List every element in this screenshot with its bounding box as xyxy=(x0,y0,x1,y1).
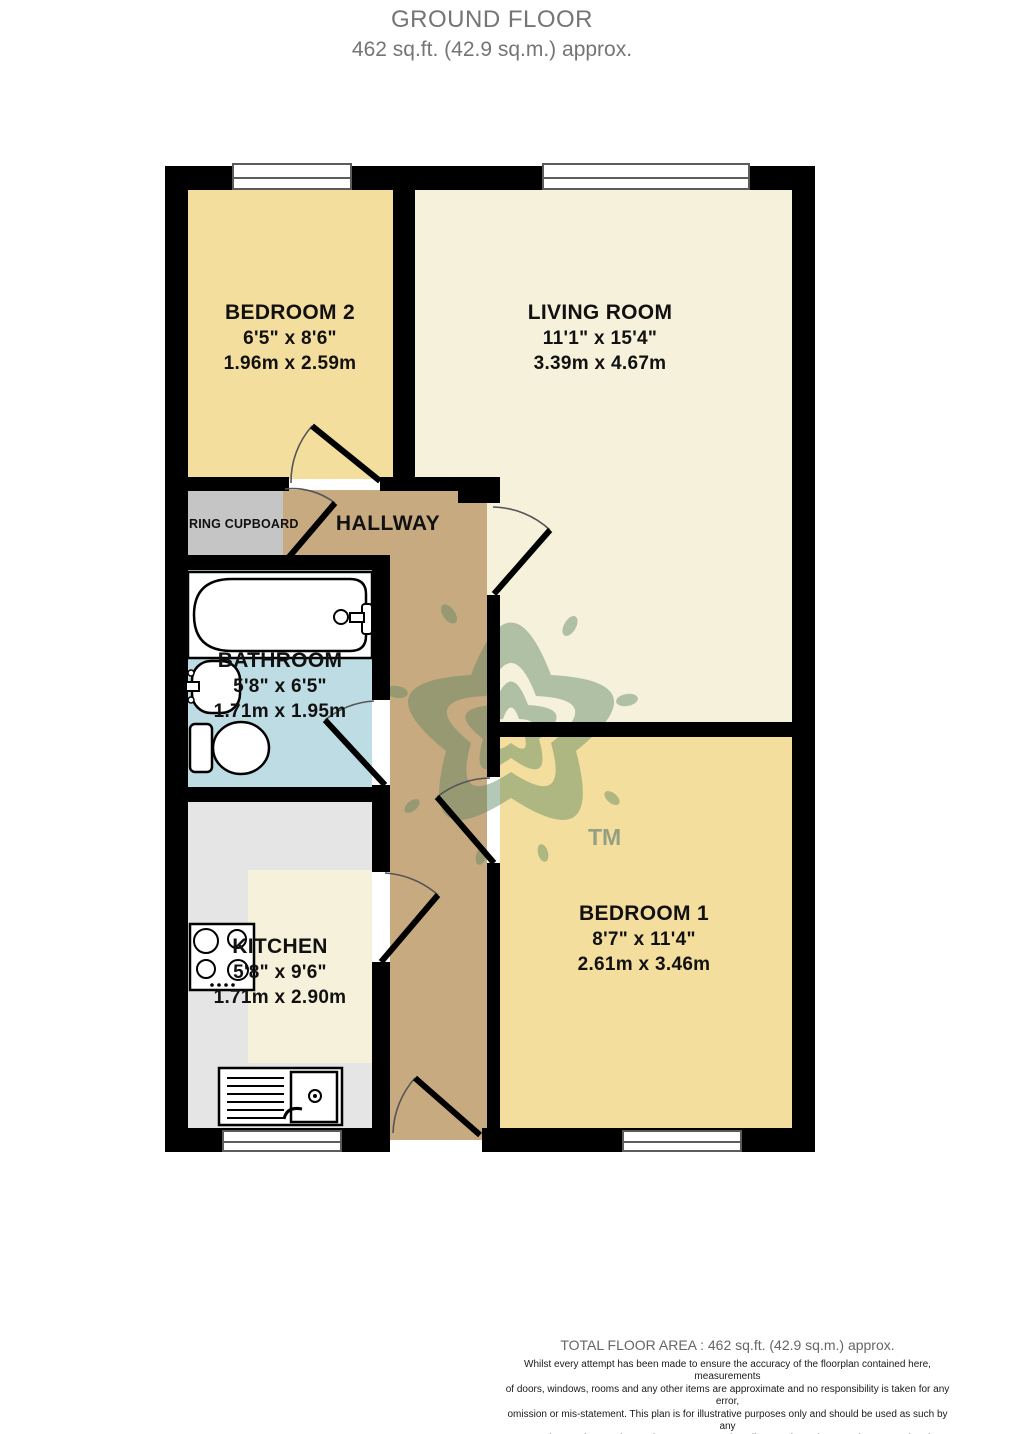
wall-hall-bedroom1-lower xyxy=(487,863,500,1128)
floor-title: GROUND FLOOR xyxy=(0,6,984,34)
room-dims-metric: 3.39m x 4.67m xyxy=(475,351,725,376)
wall-hall-living xyxy=(487,595,500,727)
room-name: LIVING ROOM xyxy=(475,300,725,326)
wall-right xyxy=(792,166,815,1152)
room-name: RING CUPBOARD xyxy=(189,517,299,531)
airing-cupboard-label: RING CUPBOARD xyxy=(189,517,289,531)
room-dims-metric: 1.96m x 2.59m xyxy=(165,351,415,376)
room-dims-imperial: 11'1" x 15'4" xyxy=(475,326,725,351)
wall-hall-corner xyxy=(458,477,500,503)
room-name: KITCHEN xyxy=(155,934,405,960)
floor-area-subtitle: 462 sq.ft. (42.9 sq.m.) approx. xyxy=(0,38,984,62)
window-pane-line xyxy=(234,177,350,179)
kitchen-window xyxy=(222,1130,342,1152)
room-name: BEDROOM 1 xyxy=(519,901,769,927)
bedroom2-label: BEDROOM 2 6'5" x 8'6" 1.96m x 2.59m xyxy=(165,300,415,376)
page-title: GROUND FLOOR 462 sq.ft. (42.9 sq.m.) app… xyxy=(0,6,984,62)
wall-hall-bedroom1-upper xyxy=(487,737,500,777)
window-pane-line xyxy=(624,1141,740,1143)
window-pane-line xyxy=(544,177,748,179)
hallway-label: HALLWAY xyxy=(308,512,468,536)
wall-bedroom2-bottom-left xyxy=(165,477,289,491)
footer: TOTAL FLOOR AREA : 462 sq.ft. (42.9 sq.m… xyxy=(500,1337,955,1434)
bedroom1-label: BEDROOM 1 8'7" x 11'4" 2.61m x 3.46m xyxy=(519,901,769,977)
disclaimer-line: Whilst every attempt has been made to en… xyxy=(500,1359,955,1384)
room-name: HALLWAY xyxy=(336,512,440,535)
bedroom1-window xyxy=(622,1130,742,1152)
room-dims-imperial: 5'8" x 6'5" xyxy=(155,674,405,699)
room-dims-metric: 1.71m x 1.95m xyxy=(155,699,405,724)
bedroom2-window xyxy=(232,163,352,190)
total-floor-area: TOTAL FLOOR AREA : 462 sq.ft. (42.9 sq.m… xyxy=(500,1337,955,1353)
room-dims-metric: 1.71m x 2.90m xyxy=(155,985,405,1010)
room-dims-imperial: 8'7" x 11'4" xyxy=(519,927,769,952)
room-dims-metric: 2.61m x 3.46m xyxy=(519,952,769,977)
floorplan-page: GROUND FLOOR 462 sq.ft. (42.9 sq.m.) app… xyxy=(0,0,1024,1434)
room-dims-imperial: 6'5" x 8'6" xyxy=(165,326,415,351)
room-dims-imperial: 5'8" x 9'6" xyxy=(155,960,405,985)
window-pane-line xyxy=(224,1141,340,1143)
wall-kitchen-right-upper xyxy=(372,802,390,872)
wall-bathroom-bottom xyxy=(165,787,390,802)
hallway-floor xyxy=(390,557,487,1140)
room-name: BEDROOM 2 xyxy=(165,300,415,326)
wall-bathroom-top xyxy=(165,555,390,570)
disclaimer-line: of doors, windows, rooms and any other i… xyxy=(500,1384,955,1409)
disclaimer-line: omission or mis-statement. This plan is … xyxy=(500,1409,955,1434)
bathroom-label: BATHROOM 5'8" x 6'5" 1.71m x 1.95m xyxy=(155,648,405,724)
wall-living-bedroom1-divider xyxy=(487,722,793,737)
living-room-label: LIVING ROOM 11'1" x 15'4" 3.39m x 4.67m xyxy=(475,300,725,376)
room-name: BATHROOM xyxy=(155,648,405,674)
kitchen-label: KITCHEN 5'8" x 9'6" 1.71m x 2.90m xyxy=(155,934,405,1010)
living-room-window xyxy=(542,163,750,190)
